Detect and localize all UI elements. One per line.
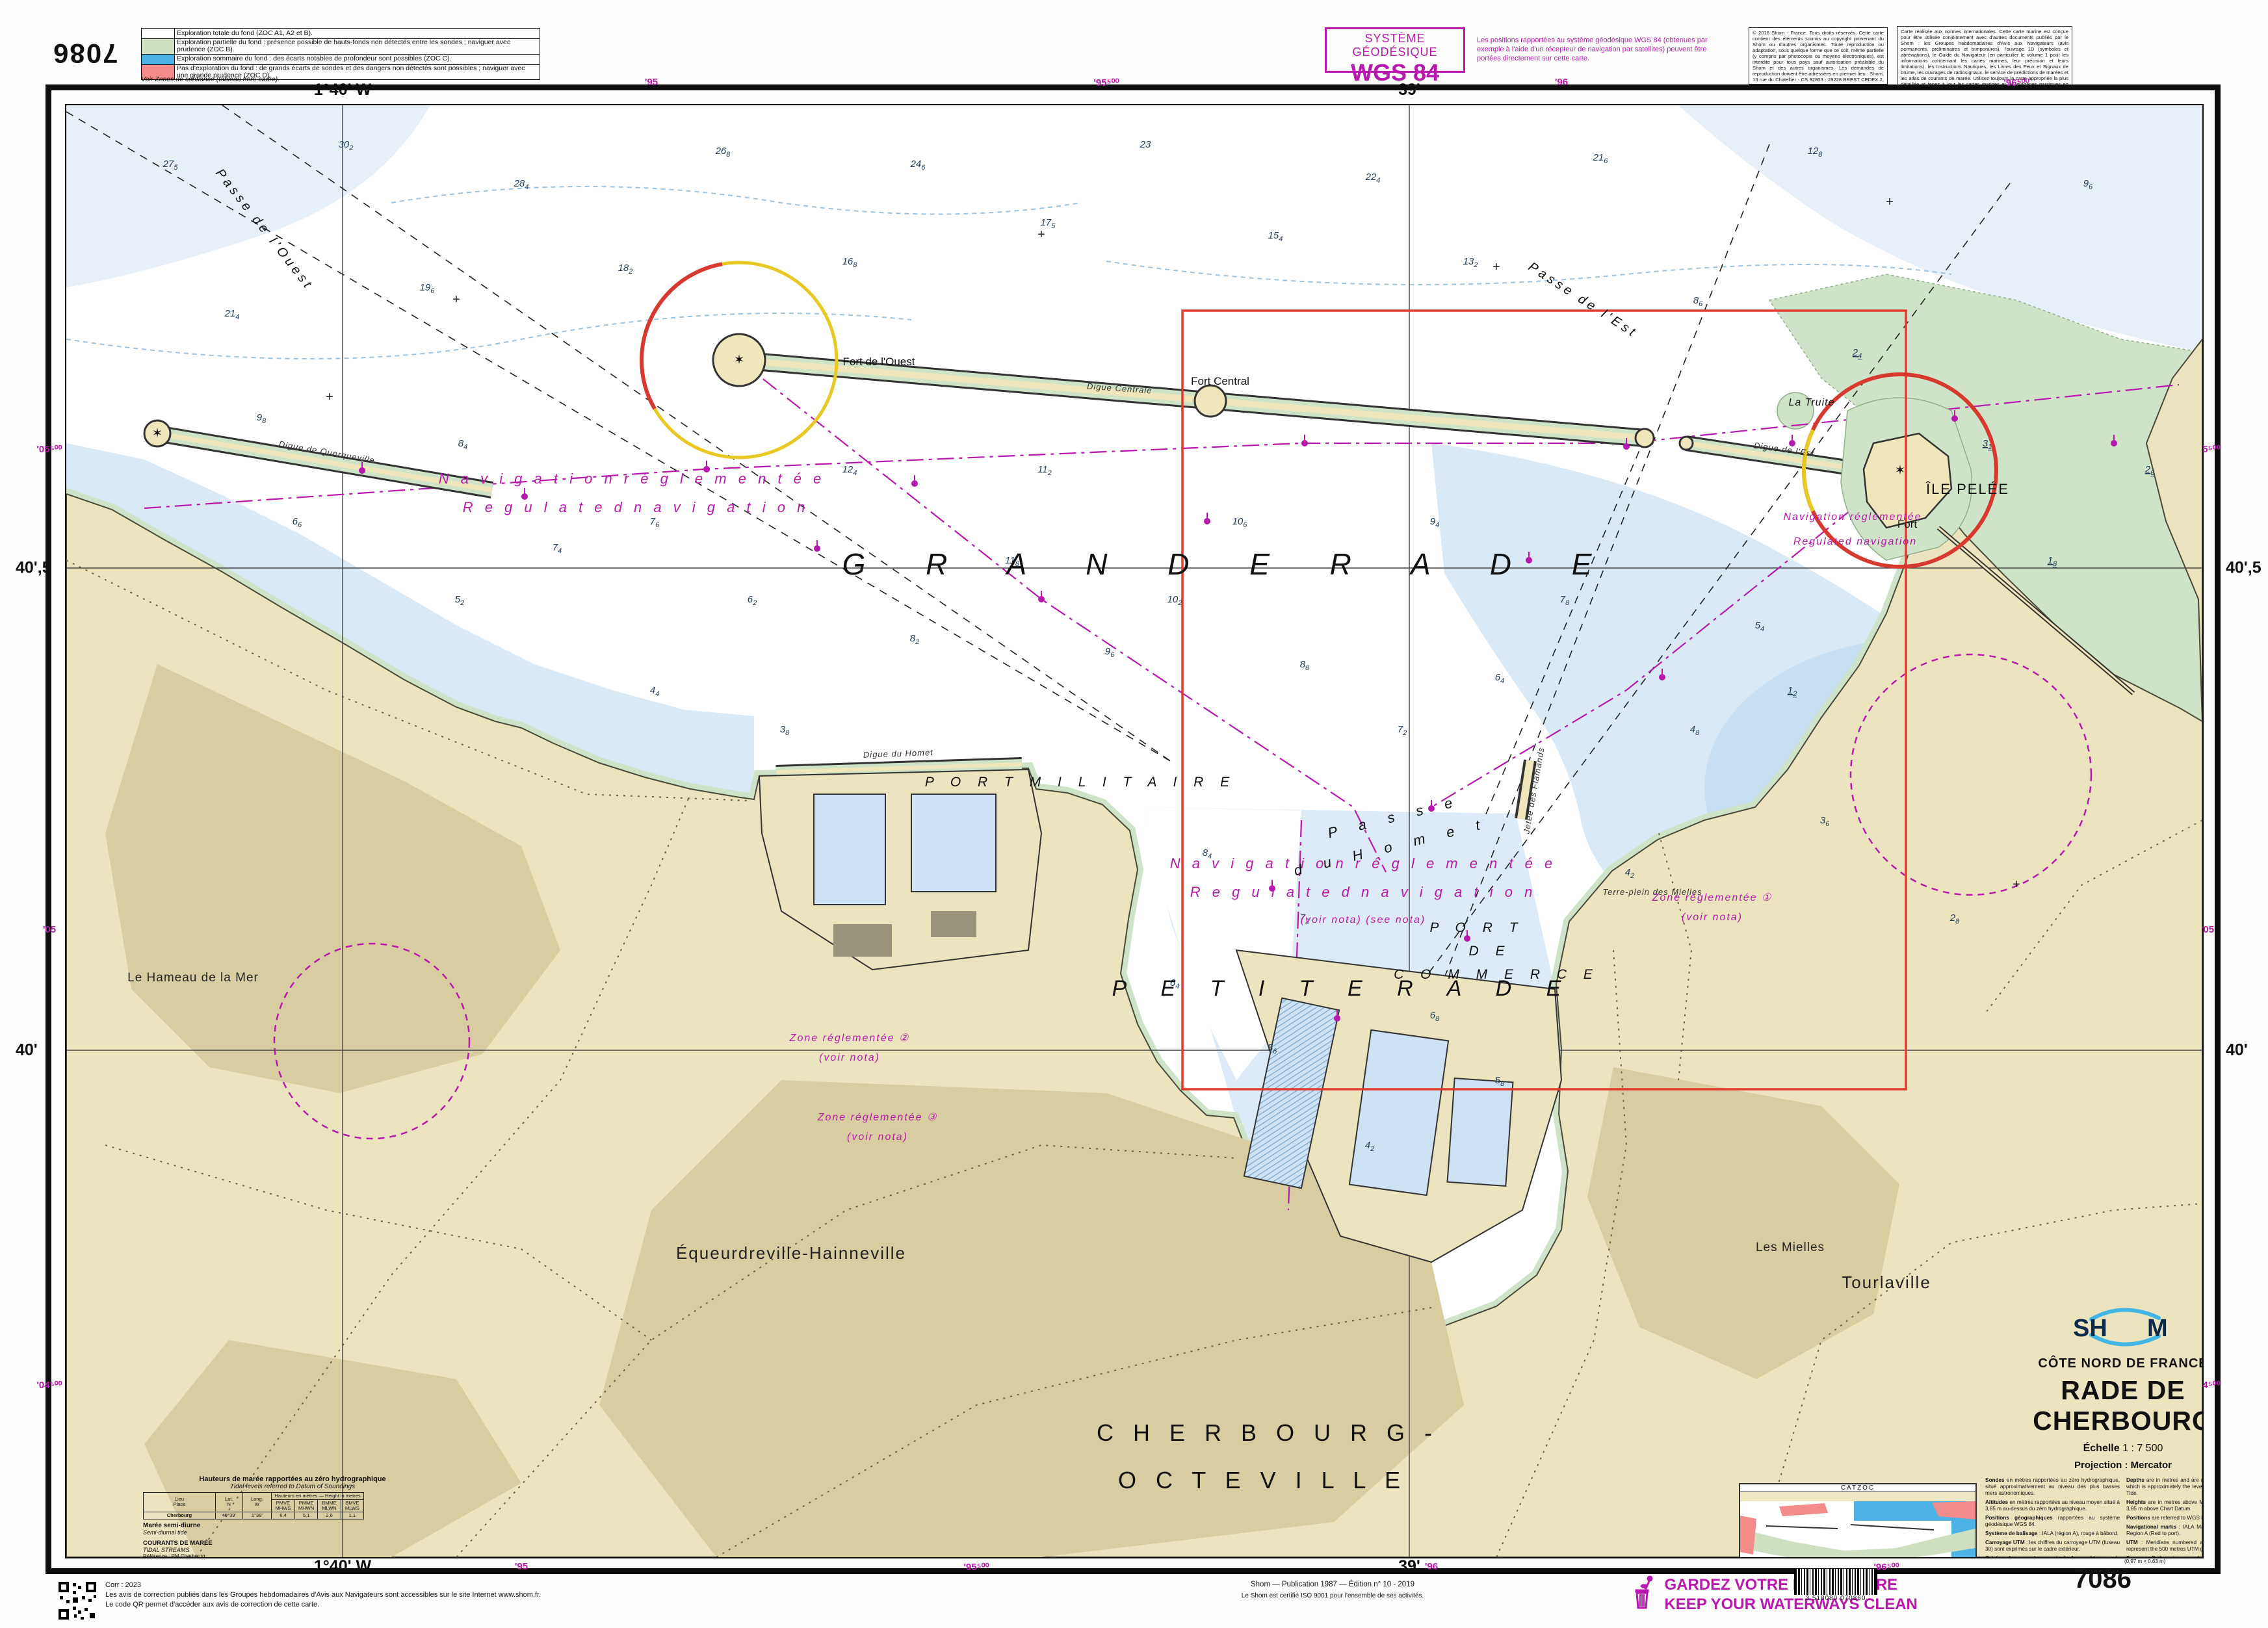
chart-dimensions: (0,97 m × 0,63 m) [2124,1558,2165,1564]
geodetic-datum-box: SYSTÈME GÉODÉSIQUE WGS 84 [1325,27,1465,73]
map-label: P O R T M I L I T A I R E [925,775,1236,790]
wreck-icon: + [326,390,333,404]
clean-sea-en: KEEP YOUR WATERWAYS CLEAN [1664,1595,1917,1614]
light-star-icon: ✶ [734,353,745,367]
streams-title-fr: COURANTS DE MARÉE [143,1540,442,1547]
nautical-chart-canvas: ++++++✶✶✶ 275302284268246232242161289621… [66,105,2202,1557]
corrections-year: Corr : 2023 [105,1581,541,1590]
map-label: D E [1468,944,1511,959]
tide-type-fr: Marée semi-diurne [143,1522,442,1529]
map-label: Fort Central [1191,375,1249,387]
utm-grid-label: '05⁵⁰⁰ [36,443,62,455]
clean-sea-fr: GARDEZ VOTRE MER PROPRE [1664,1575,1917,1595]
map-label: Équeurdreville-Hainneville [676,1243,906,1263]
buoy-icon [1951,415,1958,422]
utm-grid-label: '95 [515,1561,528,1572]
title-note-en: Heights are in metres above Mean Sea Lev… [2126,1499,2202,1512]
map-label: Fort de l'Ouest [843,355,915,368]
barcode-number: 3 518080 070860 [1794,1595,1877,1602]
map-label: Les Mielles [1756,1241,1825,1254]
map-label: Zone réglementée ③ [817,1112,938,1123]
utm-grid-label: '96 [1425,1561,1438,1572]
map-label: N a v i g a t i o n r é g l e m e n t é … [439,471,826,487]
title-notes-french: Sondes en mètres rapportées au zéro hydr… [1985,1477,2120,1557]
edition-line: Shom — Publication 1987 — Édition n° 10 … [1040,1581,1625,1588]
map-label: Tourlaville [1842,1273,1931,1292]
graticule-longitude-label: 39' [1398,81,1420,99]
chart-number-bottom-right: 7086 [2074,1565,2131,1594]
map-label: Le Hameau de la Mer [127,971,259,985]
chart-map-area: ++++++✶✶✶ 275302284268246232242161289621… [66,105,2202,1557]
buoy-icon [359,467,365,474]
buoy-icon [2111,440,2117,446]
commerce-basin-3 [1448,1078,1513,1186]
streams-title-en: TIDAL STREAMS [143,1547,442,1553]
title-note-en: Positions are referred to WGS 84 Datum. [2126,1515,2202,1521]
chart-sheet: 7086 Exploration totale du fond (ZOC A1,… [0,0,2268,1628]
buoy-icon [1464,935,1470,942]
zoc-legend-note: Voir Zones de confiance (tableau hors-ca… [141,75,280,83]
map-label: C O M M E R C E [1394,967,1599,982]
title-note-fr: Origine des renseignements hydrographiqu… [1985,1555,2120,1557]
zoc-color-swatch [142,29,175,39]
title-note-en: Sources : Bathymetry comes from surveys … [2126,1555,2202,1557]
title-note-fr: Positions géographiques rapportées au sy… [1985,1515,2120,1528]
standards-notice: Carte réalisée aux normes internationale… [1897,26,2072,86]
geodetic-datum-label: SYSTÈME GÉODÉSIQUE [1327,32,1463,59]
table-row: Cherbourg49°39'1°38'6,45,12,61,1 [144,1512,364,1519]
qr-code [57,1581,98,1621]
map-label: (voir nota) [847,1131,908,1143]
map-label: Regulated navigation [1793,536,1917,547]
catzoc-title: CATZOC [1740,1484,1975,1492]
map-label: La Truite [1789,397,1835,408]
buoy-icon [1204,518,1210,524]
utm-grid-label: '04⁵⁰⁰ [36,1379,62,1391]
barcode: 3 518080 070860 [1794,1569,1877,1602]
svg-text:SH: SH [2073,1315,2107,1342]
shom-logo: SH M [2068,1306,2178,1348]
title-note-fr: Système de balisage : IALA (région A), r… [1985,1531,2120,1537]
map-label: (voir nota) (see nota) [1301,914,1426,925]
utm-grid-label: '95⁵⁰⁰ [963,1561,989,1573]
svg-text:M: M [2147,1315,2168,1342]
title-note-en: Navigational marks : IALA Maritime Buoya… [2126,1524,2202,1537]
military-basin-2 [911,794,996,892]
map-label: Zone réglementée ② [789,1033,910,1044]
map-label: O C T E V I L L E [1118,1467,1407,1493]
zoc-legend-table: Exploration totale du fond (ZOC A1, A2 e… [141,28,540,80]
utm-grid-label: '05 [2201,924,2214,935]
buoy-icon [1038,596,1045,602]
wreck-icon: + [1886,195,1894,209]
corrections-text-2: Le code QR permet d'accéder aux avis de … [105,1600,541,1610]
map-label: G R A N D E R A D E [842,547,1618,581]
streams-reference: Référence : PM Cherbourg [143,1553,442,1558]
geodetic-datum-value: WGS 84 [1327,59,1463,86]
map-label: R e g u l a t e d n a v i g a t i o n [463,499,809,515]
light-star-icon: ✶ [152,426,163,441]
chart-number-top-left: 7086 [52,38,118,69]
graticule-latitude-label: 40',5 [16,559,51,578]
title-note-fr: Carroyage UTM : les chiffres du carroyag… [1985,1540,2120,1553]
map-label: Navigation réglementée [1784,511,1922,523]
geodetic-datum-note: Les positions rapportées au système géod… [1477,36,1724,63]
graticule-longitude-label: 39' [1398,1557,1420,1576]
corrections-text-1: Les avis de correction publiés dans les … [105,1590,541,1600]
graticule-latitude-label: 40',5 [2226,559,2261,578]
utm-grid-label: '95 [645,77,658,88]
buoy-icon [1659,674,1665,680]
corrections-note: Corr : 2023 Les avis de correction publi… [105,1581,541,1610]
utm-grid-label: '95⁵⁰⁰ [1093,77,1119,88]
zoc-color-swatch [142,39,175,55]
chart-projection: Projection : Mercator [1985,1460,2202,1471]
graticule-latitude-label: 40' [2226,1041,2248,1060]
utm-grid-label: '05 [43,924,56,935]
title-note-en: UTM : Meridians numbered and ticks in th… [2126,1540,2202,1553]
map-label: Zone réglementée ① [1652,892,1773,903]
title-notes-english: Depths are in metres and are reduced to … [2126,1477,2202,1557]
buoy-icon [1334,1015,1340,1022]
wreck-icon: + [1037,227,1045,242]
zoc-color-swatch [142,54,175,64]
utm-grid-label: '96⁵⁰⁰ [1873,1561,1899,1573]
utm-grid-label: '96 [1555,77,1568,88]
edition-note: Shom — Publication 1987 — Édition n° 10 … [1040,1581,1625,1599]
map-label: R e g u l a t e d n a v i g a t i o n [1190,884,1537,900]
map-label: (voir nota) [1682,912,1743,923]
buoy-icon [1301,440,1308,446]
chart-title: RADE DE CHERBOURG [1985,1375,2202,1436]
zoc-legend-row: Exploration sommaire du fond : des écart… [142,54,540,64]
title-note-fr: Altitudes en mètres rapportées au niveau… [1985,1499,2120,1512]
barcode-bars [1794,1569,1877,1595]
wreck-icon: + [452,292,460,307]
tide-heading-en: Tidal levels referred to Datum of Soundi… [143,1483,442,1490]
military-basin-1 [814,794,885,905]
copyright-notice: © 2016 Shom - France. Tous droits réserv… [1749,27,1888,84]
military-building [931,911,976,937]
military-building [833,924,892,957]
zoc-row-text: Exploration sommaire du fond : des écart… [175,54,540,64]
buoy-icon [1623,443,1630,450]
zoc-row-text: Exploration partielle du fond : présence… [175,39,540,55]
buoy-icon [911,480,918,487]
tide-levels-table: LieuPlaceLat.NLong.WHauteurs en mètres —… [143,1492,364,1519]
tide-heading-fr: Hauteurs de marée rapportées au zéro hyd… [143,1475,442,1483]
catzoc-minimap [1740,1492,1975,1557]
map-label: P O R T [1429,920,1524,935]
graticule-longitude-label: 1°40' W [314,1557,371,1576]
trash-bin-icon [1633,1575,1656,1609]
wreck-icon: + [2013,877,2020,892]
buoy-icon [814,545,820,552]
graticule-latitude-label: 40' [16,1041,38,1060]
title-block: SH M CÔTE NORD DE FRANCE RADE DE CHERBOU… [1985,1306,2202,1557]
tide-tables-block: Hauteurs de marée rapportées au zéro hyd… [143,1475,442,1557]
zoc-legend-row: Exploration partielle du fond : présence… [142,39,540,55]
depth-sounding: 23 [1140,139,1151,150]
chart-region: CÔTE NORD DE FRANCE [1985,1356,2202,1371]
wreck-icon: + [1492,260,1500,274]
title-note-en: Depths are in metres and are reduced to … [2126,1477,2202,1497]
light-star-icon: ✶ [1895,463,1906,478]
zoc-row-text: Exploration totale du fond (ZOC A1, A2 e… [175,29,540,39]
zoc-legend-row: Exploration totale du fond (ZOC A1, A2 e… [142,29,540,39]
table-row: LieuPlaceLat.NLong.WHauteurs en mètres —… [144,1493,364,1500]
catzoc-inset: CATZOC Consulter le tableau hors-cadre. … [1739,1483,1977,1557]
map-label: ÎLE PELÉE [1925,481,2009,497]
chart-scale: Échelle 1 : 7 500 [1985,1443,2202,1454]
map-label: C H E R B O U R G - [1097,1419,1439,1446]
title-note-fr: Sondes en mètres rapportées au zéro hydr… [1985,1477,2120,1497]
map-label: (voir nota) [819,1052,880,1063]
iso-line: Le Shom est certifié ISO 9001 pour l'ens… [1040,1592,1625,1599]
map-label: N a v i g a t i o n r é g l e m e n t é … [1170,855,1557,872]
utm-grid-label: '96⁵⁰⁰ [2003,77,2029,88]
tide-type-en: Semi-diurnal tide [143,1529,442,1536]
graticule-longitude-label: 1°40' W [314,81,371,99]
